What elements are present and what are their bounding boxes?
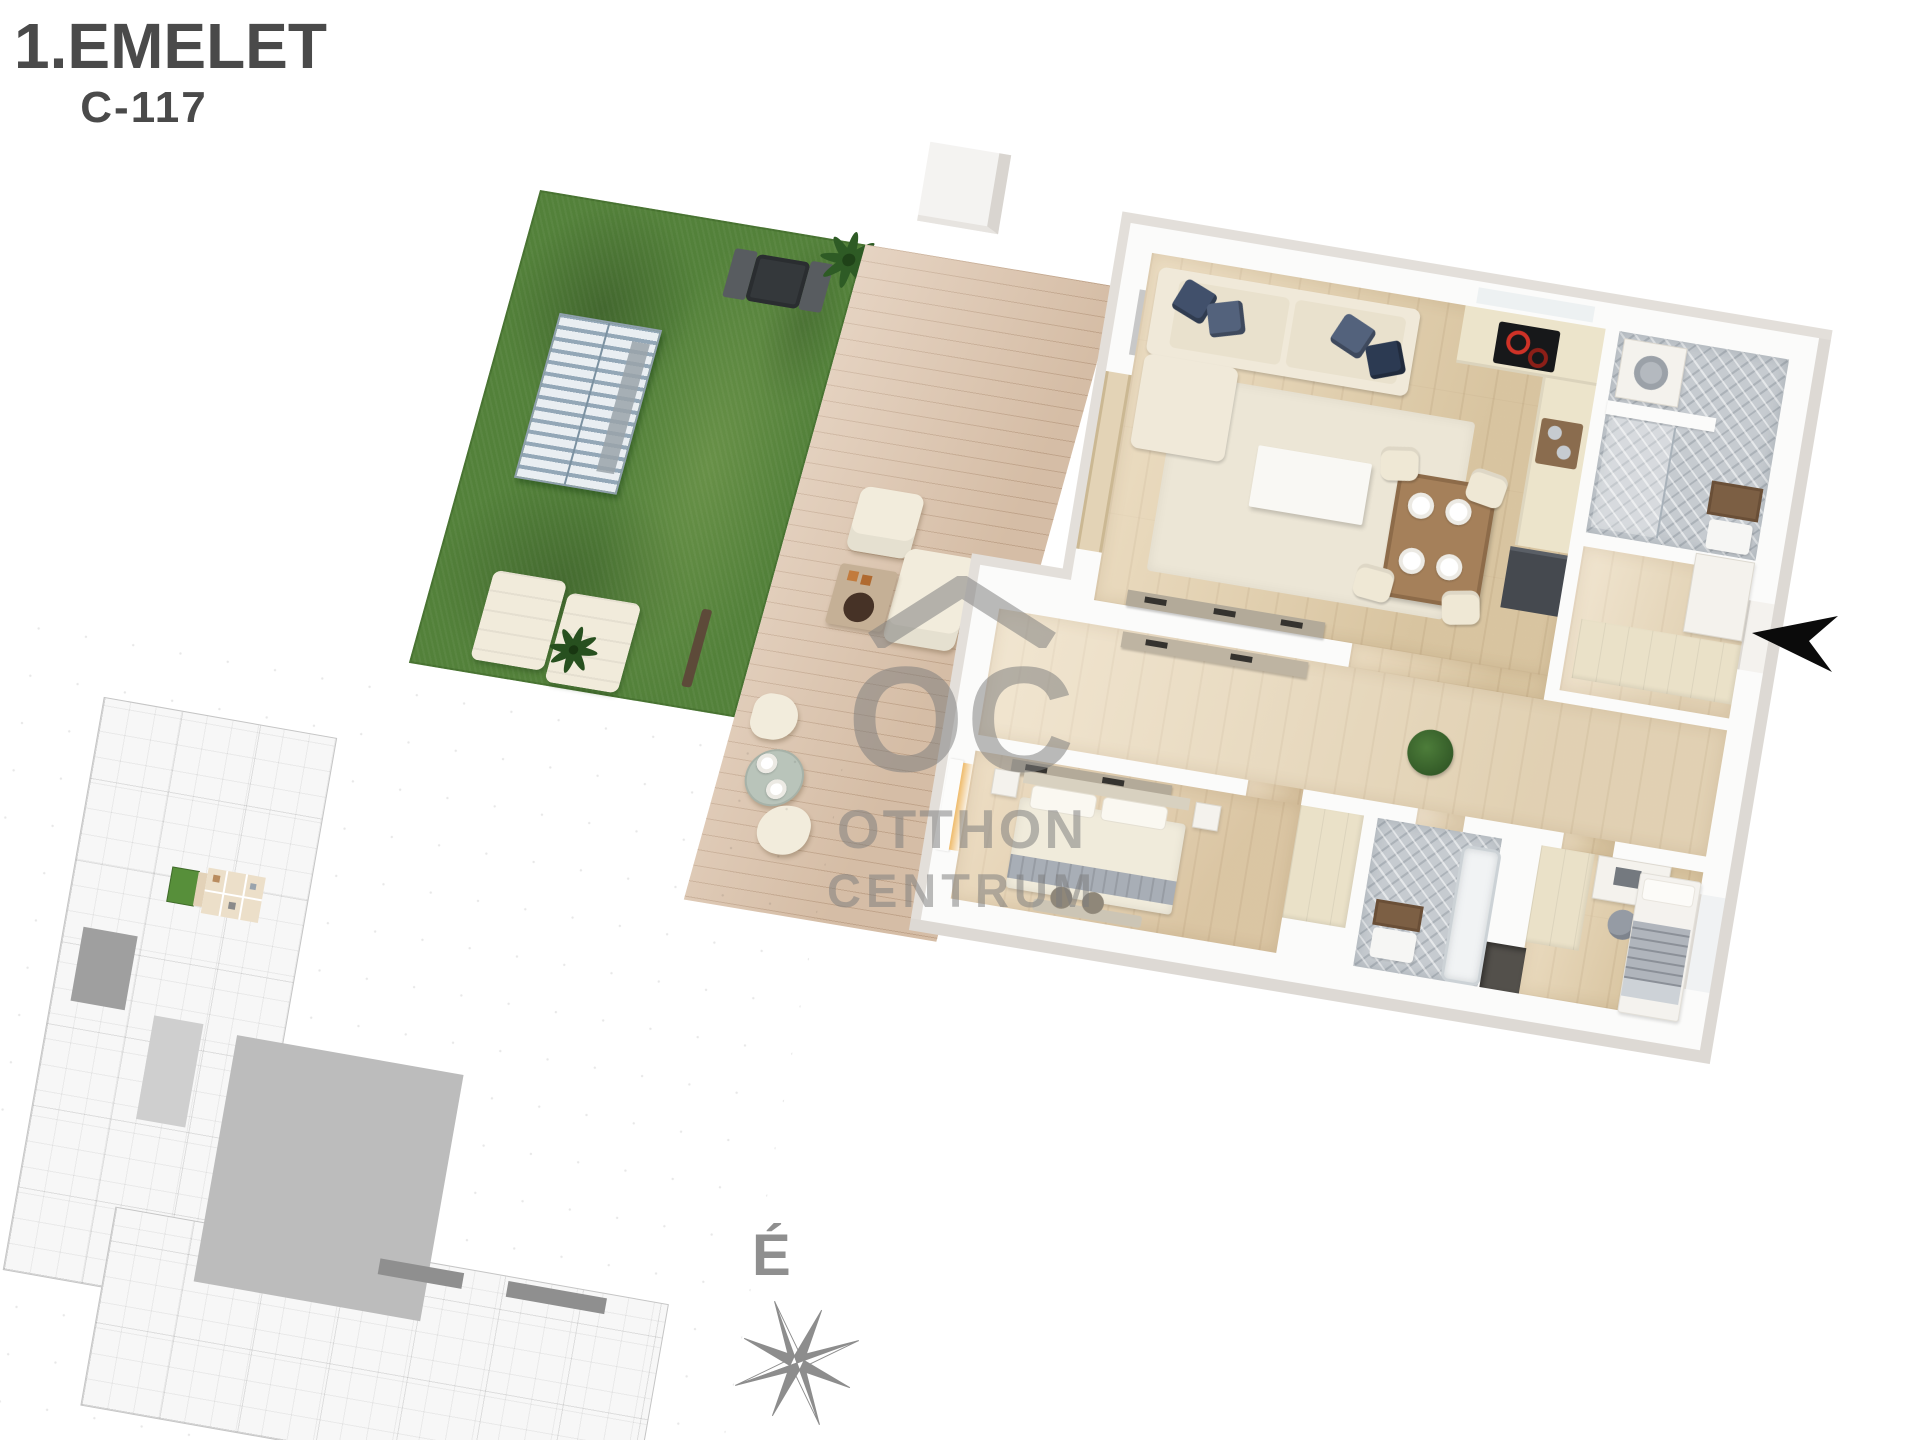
bed-pillow	[1641, 878, 1696, 908]
washer-drum	[1631, 353, 1670, 392]
kitchen-sink	[1535, 418, 1584, 470]
watermark-line2: CENTRUM	[812, 863, 1112, 918]
unit-wall-line	[205, 889, 262, 901]
greenhouse	[514, 313, 662, 495]
watermark-line1: OTTHON	[812, 797, 1112, 861]
watermark-monogram: OC	[812, 648, 1112, 791]
floor-title: 1.EMELET	[14, 14, 354, 78]
unit-furniture-dot	[228, 902, 236, 910]
decor-item	[1230, 653, 1253, 663]
entrance-arrow-icon	[1752, 616, 1840, 674]
throw-pillow	[1206, 300, 1246, 338]
washing-machine	[1615, 338, 1688, 408]
dining-chair	[1380, 446, 1419, 481]
nightstand	[1192, 802, 1222, 832]
dining-chair	[1442, 591, 1480, 625]
decor-item	[1145, 639, 1168, 649]
watermark: OC OTTHON CENTRUM	[812, 576, 1112, 918]
decor-item	[1280, 619, 1303, 629]
unit-furniture-dot	[212, 875, 220, 883]
compass-north-label: É	[752, 1222, 791, 1289]
unit-number: C-117	[14, 86, 274, 130]
building-protrusion	[917, 142, 1011, 234]
floor-plan-page: 1.EMELET C-117	[0, 0, 1920, 1440]
sofa-chaise	[1130, 353, 1239, 462]
decor-item	[1213, 608, 1236, 618]
unit-furniture-dot	[250, 883, 257, 890]
cooktop-burner	[1504, 329, 1532, 357]
greenhouse-side-panel	[596, 341, 650, 474]
lounger-wood-frame	[681, 609, 712, 688]
decor-item	[1144, 596, 1167, 606]
refrigerator	[1500, 546, 1567, 617]
page-title: 1.EMELET C-117	[14, 14, 354, 130]
shaft-niche	[1479, 942, 1526, 994]
sink-bowl	[1556, 445, 1572, 461]
bed-blanket	[1624, 920, 1691, 987]
sink-bowl	[1547, 425, 1563, 441]
cooktop-burner	[1526, 347, 1549, 370]
throw-pillow	[1365, 340, 1407, 380]
highlighted-unit-rooms	[201, 868, 266, 923]
building-key-plan	[0, 647, 800, 1440]
